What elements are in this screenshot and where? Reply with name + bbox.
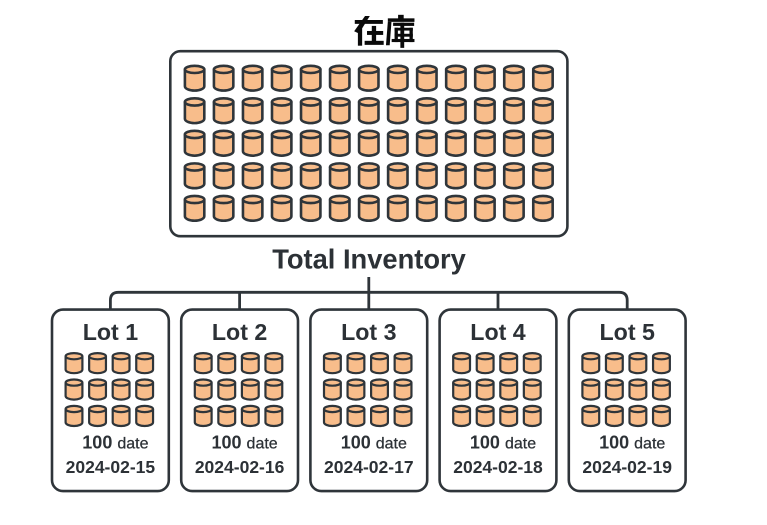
svg-text:100 date: 100 date <box>341 433 407 453</box>
svg-text:100 date: 100 date <box>470 433 536 453</box>
svg-text:Lot 3: Lot 3 <box>341 319 396 345</box>
svg-text:Total Inventory: Total Inventory <box>272 244 466 275</box>
svg-text:2024-02-15: 2024-02-15 <box>66 457 156 477</box>
svg-text:Lot 1: Lot 1 <box>83 319 138 345</box>
svg-text:2024-02-18: 2024-02-18 <box>453 457 543 477</box>
svg-text:2024-02-16: 2024-02-16 <box>195 457 285 477</box>
svg-text:Lot 2: Lot 2 <box>212 319 267 345</box>
svg-text:2024-02-19: 2024-02-19 <box>582 457 672 477</box>
svg-text:100 date: 100 date <box>82 433 148 453</box>
svg-text:Lot 4: Lot 4 <box>470 319 525 345</box>
svg-text:100 date: 100 date <box>599 433 665 453</box>
svg-text:Lot 5: Lot 5 <box>600 319 655 345</box>
svg-text:100 date: 100 date <box>212 433 278 453</box>
svg-text:2024-02-17: 2024-02-17 <box>324 457 414 477</box>
